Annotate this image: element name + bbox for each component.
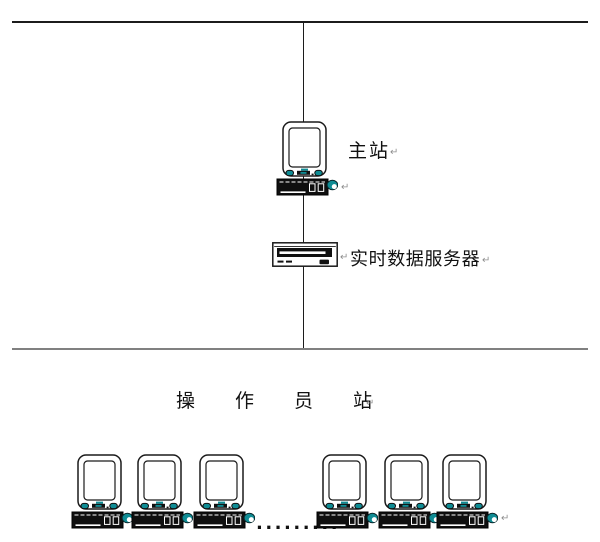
network-diagram: 主站 ↵ ↵ ↵ 实时数据服务器 ↵ 操作员站 ↵ ......... ↵ (0, 0, 600, 542)
paragraph-return-icon: ↵ (501, 514, 509, 524)
workstation-icon (71, 454, 133, 532)
realtime-server-icon (272, 242, 338, 267)
workstation-icon (193, 454, 255, 532)
paragraph-return-icon: ↵ (340, 253, 348, 263)
operator-station-label: 操作员站 (176, 391, 412, 413)
paragraph-return-icon: ↵ (390, 148, 398, 158)
top-bus-line (12, 21, 588, 23)
realtime-server-label: 实时数据服务器 (350, 250, 480, 271)
paragraph-return-icon: ↵ (366, 399, 374, 409)
main-station-label: 主站 (348, 141, 390, 163)
workstation-icon (131, 454, 193, 532)
workstation-icon (316, 454, 378, 532)
workstation-icon (378, 454, 440, 532)
paragraph-return-icon: ↵ (482, 256, 490, 266)
bottom-bus-line (12, 348, 588, 350)
workstation-icon (436, 454, 498, 532)
main-station-computer-icon (276, 121, 338, 199)
paragraph-return-icon: ↵ (341, 183, 349, 193)
